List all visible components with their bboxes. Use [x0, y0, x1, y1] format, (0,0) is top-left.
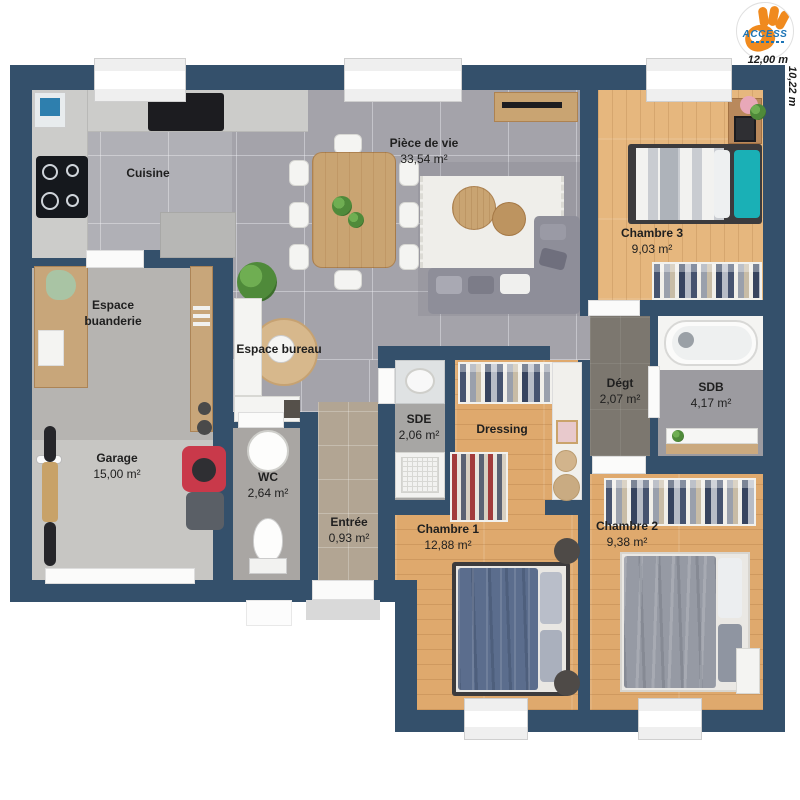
- washer-knob: [197, 420, 212, 435]
- sofa-cushion: [540, 224, 566, 240]
- bike-frame: [42, 462, 58, 522]
- room-name: Entrée: [329, 515, 370, 531]
- bed3-pillow: [714, 150, 730, 218]
- laundry-plant: [46, 270, 76, 300]
- room-name: Dressing: [476, 422, 527, 438]
- cooktop-burner: [41, 192, 59, 210]
- room-area: 12,88 m²: [417, 538, 479, 554]
- living-plant: [237, 262, 277, 302]
- room-label-chambre3: Chambre 3 9,03 m²: [621, 226, 683, 257]
- bedroom3-window: [646, 58, 732, 102]
- room-name: Chambre 1: [417, 522, 479, 538]
- bed2-pillow: [718, 558, 742, 618]
- washer-knob: [198, 402, 211, 415]
- room-label-sdb: SDB 4,17 m²: [691, 380, 732, 411]
- bed3-plant: [750, 104, 766, 120]
- room-area: 9,38 m²: [596, 535, 658, 551]
- room-label-chambre1: Chambre 1 12,88 m²: [417, 522, 479, 553]
- room-area: 2,07 m²: [600, 392, 641, 408]
- wc-door: [238, 412, 284, 428]
- bed1-nightstand: [554, 538, 580, 564]
- room-label-dressing: Dressing: [476, 422, 527, 438]
- wall-outer-right: [763, 65, 785, 732]
- dressing-box: [556, 420, 578, 444]
- floor-entry: [318, 402, 378, 582]
- dressing-basket: [555, 450, 577, 472]
- floor-plan: Cuisine Pièce de vie 33,54 m² Chambre 3 …: [0, 0, 800, 800]
- bed2-blanket: [624, 556, 716, 688]
- bed1-pillow: [540, 572, 562, 624]
- room-name: WC: [248, 470, 289, 486]
- room-label-chambre2: Chambre 2 9,38 m²: [596, 519, 658, 550]
- bedroom2-bench: [736, 648, 760, 694]
- dimension-height: 10,22 m: [786, 66, 798, 106]
- logo-text: ACCESS: [737, 29, 793, 40]
- kitchen-appliance-lid: [40, 98, 60, 116]
- room-name: Chambre 2: [596, 519, 658, 535]
- room-label-degt: Dégt 2,07 m²: [600, 376, 641, 407]
- wall-outer-bottom-right: [395, 710, 785, 732]
- wc-basin: [247, 430, 289, 472]
- wall-living-bedroom3: [580, 90, 598, 300]
- sde-sink: [405, 368, 435, 394]
- room-label-buanderie: Espace buanderie: [71, 298, 155, 329]
- room-name: SDB: [691, 380, 732, 396]
- bedroom3-door: [588, 300, 640, 316]
- bath-vanity-wood: [666, 444, 758, 454]
- room-label-bureau: Espace bureau: [236, 342, 321, 358]
- laundry-door: [86, 250, 144, 268]
- tv-screen: [502, 102, 562, 108]
- sofa-throw: [500, 274, 530, 294]
- room-area: 9,03 m²: [621, 242, 683, 258]
- bike-wheel: [44, 426, 56, 462]
- dining-chair: [399, 244, 419, 270]
- room-name: Chambre 3: [621, 226, 683, 242]
- sofa-cushion: [468, 276, 494, 294]
- cooktop-burner: [66, 164, 79, 177]
- wall-hall-top: [378, 346, 550, 360]
- laundry-cabinet-slat: [193, 314, 210, 318]
- office-desk-item: [284, 400, 300, 418]
- bathroom-door: [648, 366, 660, 418]
- living-window: [344, 58, 462, 102]
- garage-door: [45, 568, 195, 584]
- access-logo: ACCESS: [736, 2, 794, 60]
- bedroom3-wardrobe: [652, 262, 762, 300]
- room-name: Pièce de vie: [390, 136, 459, 152]
- room-name: Espace buanderie: [71, 298, 155, 329]
- room-label-wc: WC 2,64 m²: [248, 470, 289, 501]
- table-plant: [332, 196, 352, 216]
- bike-wheel: [44, 522, 56, 566]
- dressing-wardrobe: [458, 362, 552, 404]
- mower-engine: [192, 458, 216, 482]
- room-area: 4,17 m²: [691, 396, 732, 412]
- wall-bedroom1-top-b: [545, 500, 582, 515]
- bed3-pillow-teal: [734, 150, 760, 218]
- room-label-cuisine: Cuisine: [126, 166, 169, 182]
- bed1-nightstand: [554, 670, 580, 696]
- dressing-basket: [553, 474, 580, 501]
- dining-chair: [399, 202, 419, 228]
- bed3-blanket: [636, 148, 724, 220]
- dining-chair: [289, 160, 309, 186]
- room-area: 2,64 m²: [248, 486, 289, 502]
- room-area: 2,06 m²: [399, 428, 440, 444]
- shower-grid: [401, 457, 439, 493]
- bathtub-drain: [678, 332, 694, 348]
- kitchen-window: [94, 58, 186, 102]
- logo-underline: [751, 41, 785, 43]
- laundry-towels: [38, 330, 64, 366]
- room-area: 0,93 m²: [329, 531, 370, 547]
- bath-plant: [672, 430, 684, 442]
- wall-wc-right: [300, 412, 318, 580]
- room-name: Garage: [93, 451, 140, 467]
- dining-chair: [334, 270, 362, 290]
- bedroom1-closet: [450, 452, 508, 522]
- coffee-table: [452, 186, 496, 230]
- cooktop-burner: [66, 194, 79, 207]
- room-name: Espace bureau: [236, 342, 321, 358]
- room-name: Dégt: [600, 376, 641, 392]
- room-area: 33,54 m²: [390, 152, 459, 168]
- coffee-table-small: [492, 202, 526, 236]
- laundry-cabinet-slat: [193, 306, 210, 310]
- wc-door-mat: [246, 600, 292, 626]
- toilet-tank: [249, 558, 287, 574]
- sofa-cushion: [436, 276, 462, 294]
- bedroom1-window: [464, 698, 528, 740]
- wall-bedroom1-top-a: [395, 500, 450, 515]
- room-label-sde: SDE 2,06 m²: [399, 412, 440, 443]
- cooktop-burner: [42, 164, 58, 180]
- dimension-width: 12,00 m: [748, 54, 788, 66]
- room-label-piece-de-vie: Pièce de vie 33,54 m²: [390, 136, 459, 167]
- toilet-bowl: [253, 518, 283, 562]
- mower-bag: [186, 492, 224, 530]
- dining-chair: [289, 202, 309, 228]
- wall-laundry-right: [213, 250, 233, 580]
- front-door-step: [306, 600, 380, 620]
- kitchen-island: [160, 212, 236, 258]
- bedroom2-window: [638, 698, 702, 740]
- room-name: Cuisine: [126, 166, 169, 182]
- bed1-blanket: [458, 568, 538, 690]
- room-label-garage: Garage 15,00 m²: [93, 451, 140, 482]
- dining-chair: [289, 244, 309, 270]
- front-door: [312, 580, 374, 600]
- laundry-cabinet-slat: [193, 322, 210, 326]
- bedroom2-door: [592, 456, 646, 474]
- room-name: SDE: [399, 412, 440, 428]
- wall-outer-left: [10, 65, 32, 602]
- bed3-picture-frame: [734, 116, 756, 142]
- table-plant: [348, 212, 364, 228]
- room-area: 15,00 m²: [93, 467, 140, 483]
- sde-door: [378, 368, 395, 404]
- dining-table: [312, 152, 396, 268]
- dining-chair: [334, 134, 362, 154]
- bed3-fold: [660, 148, 678, 220]
- room-label-entree: Entrée 0,93 m²: [329, 515, 370, 546]
